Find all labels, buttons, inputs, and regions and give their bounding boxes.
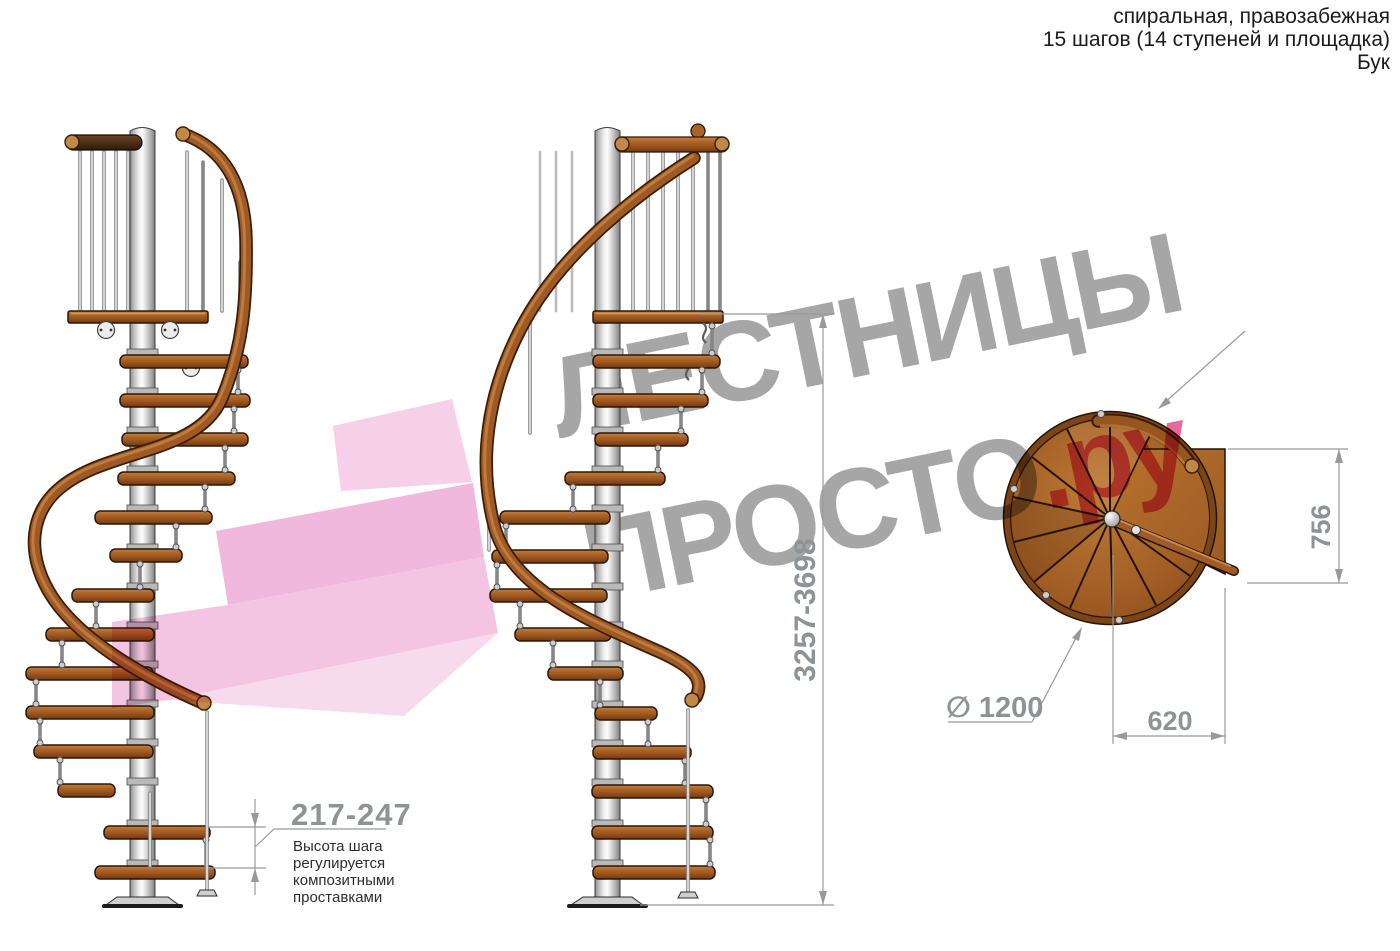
landing-width-label: 620: [1120, 706, 1220, 737]
step-height-note: Высота шага регулируется композитными пр…: [293, 838, 395, 906]
step-height-label: 217-247: [291, 797, 412, 833]
plan-leader-arrow: [1158, 331, 1245, 409]
landing-depth-label: 756: [1306, 477, 1334, 577]
technical-drawing-page: ЛЕСТНИЦЫ ПРОСТО.ру: [0, 0, 1400, 951]
title-line-steps: 15 шагов (14 ступеней и площадка): [1043, 28, 1390, 51]
title-line-type: спиральная, правозабежная: [1043, 5, 1390, 28]
diameter-label: ∅ 1200: [946, 690, 1043, 725]
dimension-lines: [0, 0, 1400, 951]
drawing-title-block: спиральная, правозабежная 15 шагов (14 с…: [1043, 5, 1390, 74]
title-line-material: Бук: [1043, 51, 1390, 74]
total-height-label: 3257-3698: [789, 510, 823, 710]
